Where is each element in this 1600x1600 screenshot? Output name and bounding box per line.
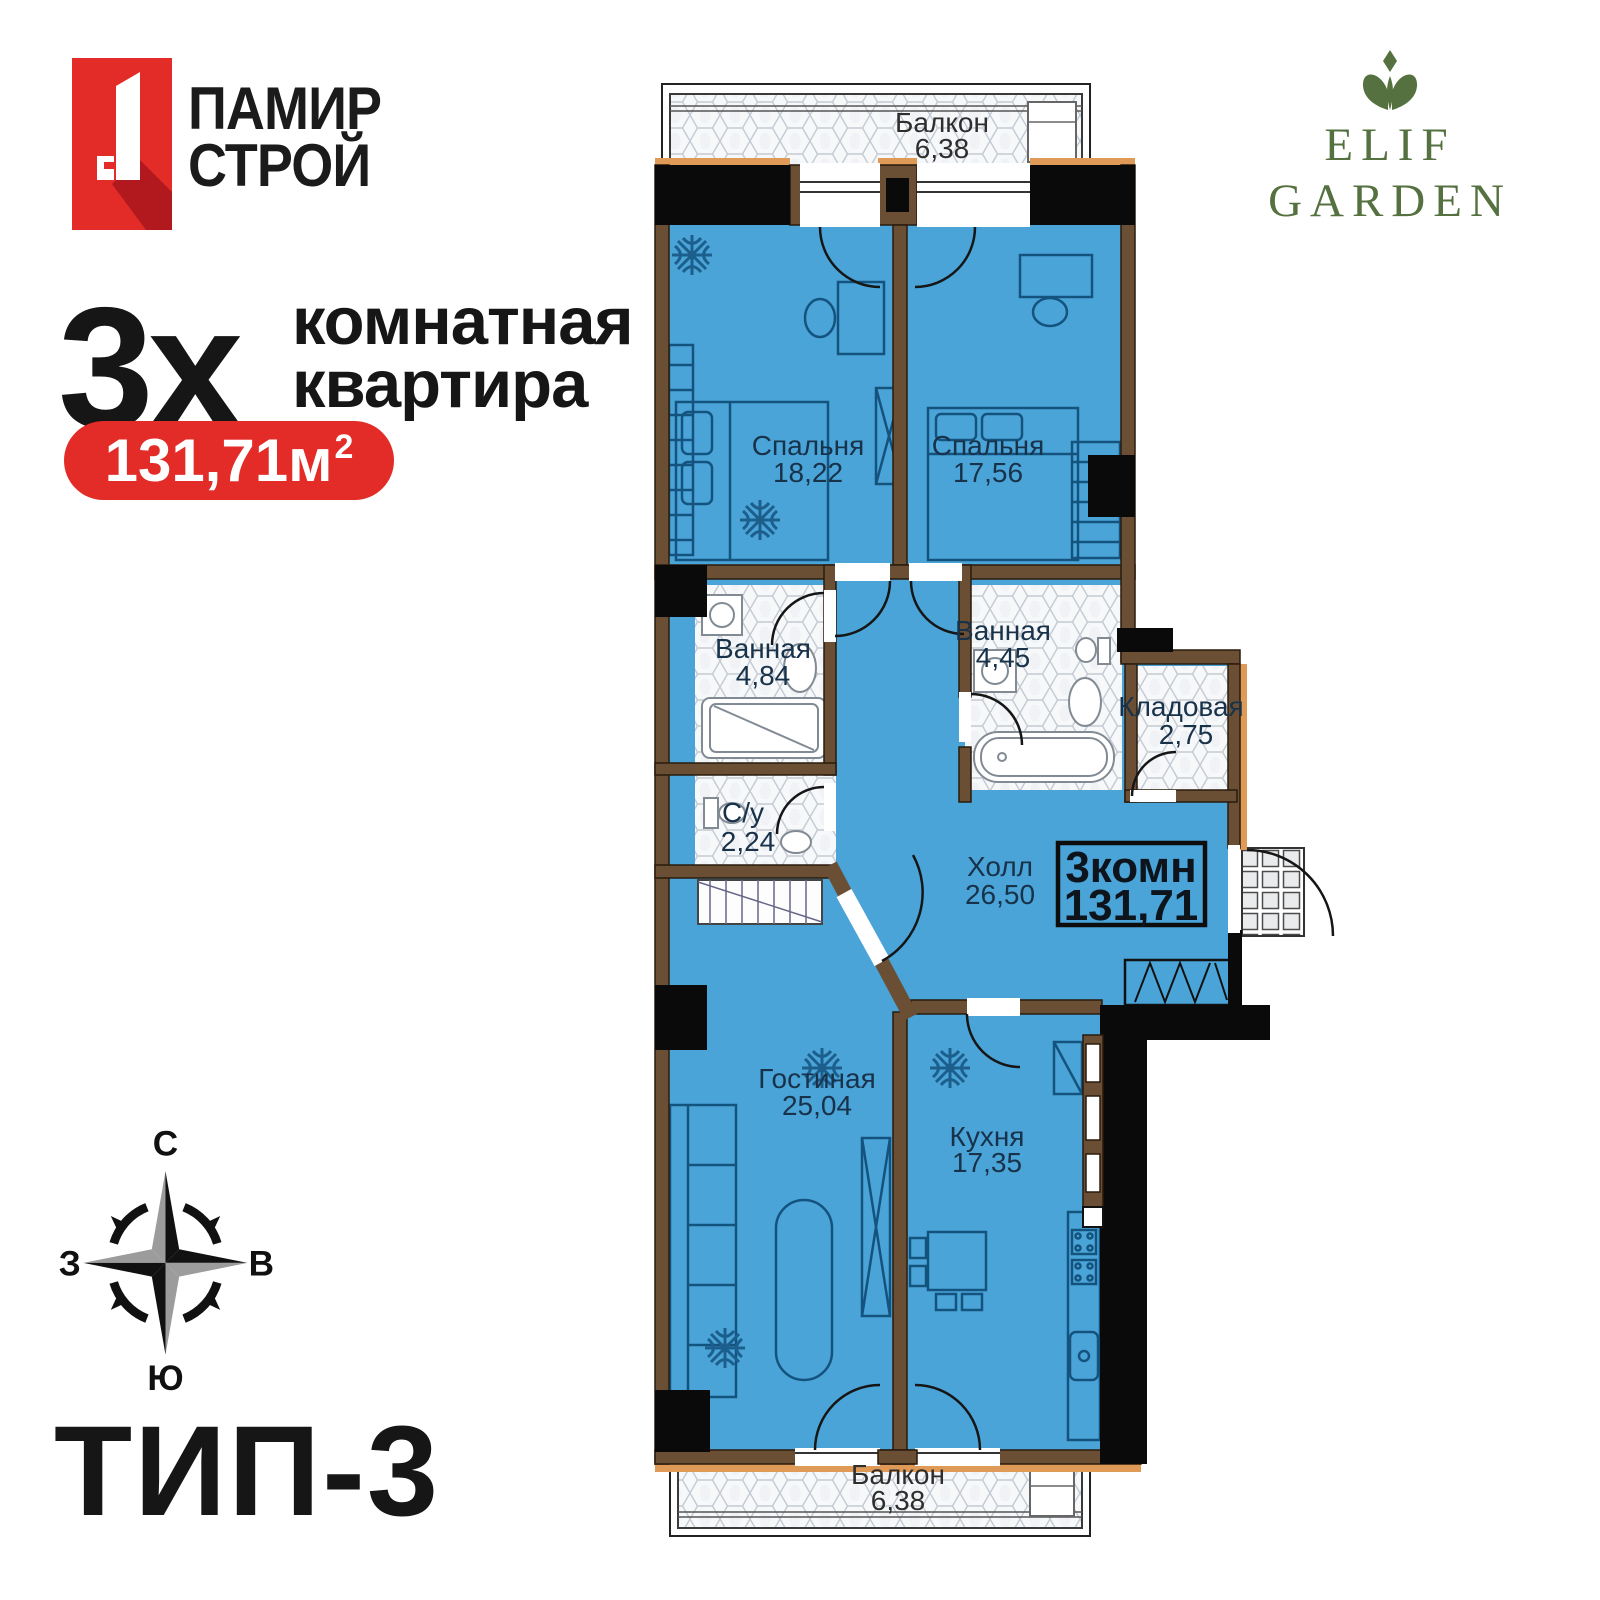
plant-icon — [930, 1048, 970, 1088]
room-area-label: 25,04 — [782, 1090, 852, 1121]
compass-east-label: В — [249, 1245, 273, 1284]
room-label: Холл — [967, 851, 1033, 882]
headline-text: комнатная квартира — [292, 290, 633, 416]
room-area-label: 6,38 — [871, 1485, 926, 1516]
developer-logo: ПАМИР СТРОЙ — [72, 58, 402, 233]
area-badge: 131,71м2 — [64, 421, 394, 500]
room-area-label: 18,22 — [773, 457, 843, 488]
room-label: С/у — [722, 797, 764, 828]
balcony-top — [662, 84, 1090, 170]
developer-logo-icon — [72, 58, 172, 230]
room-area-label: 17,35 — [952, 1147, 1022, 1178]
headline-line1: комнатная — [292, 290, 633, 353]
room-area-label: 2,75 — [1159, 719, 1214, 750]
compass-south-label: Ю — [147, 1359, 183, 1394]
summary-box: 3комн 131,71 — [1058, 843, 1205, 930]
room-area-label: 2,24 — [721, 826, 776, 857]
compass-west-label: З — [59, 1245, 81, 1284]
plant-icon — [740, 500, 780, 540]
plant-icon — [672, 235, 712, 275]
area-badge-sup: 2 — [334, 428, 353, 467]
entry-mat — [1242, 848, 1304, 936]
developer-name: ПАМИР СТРОЙ — [188, 80, 381, 194]
room-area-label: 17,56 — [953, 457, 1023, 488]
area-badge-value: 131,71м — [105, 426, 333, 495]
room-area-label: 6,38 — [915, 133, 970, 164]
plant-icon — [705, 1328, 745, 1368]
tulip-icon — [1355, 50, 1425, 112]
floorplan-poster: { "branding": { "developer": {"name_line… — [0, 0, 1600, 1600]
compass-north-label: С — [153, 1126, 178, 1163]
room-area-label: 26,50 — [965, 879, 1035, 910]
summary-area: 131,71 — [1064, 881, 1199, 930]
room-label: Кладовая — [1118, 691, 1243, 722]
room-area-label: 4,45 — [976, 642, 1031, 673]
headline-line2: квартира — [292, 353, 633, 416]
type-label: ТИП-3 — [54, 1398, 440, 1545]
compass-rose: С В Ю З — [58, 1126, 273, 1394]
kitchen-window — [1083, 1035, 1103, 1227]
developer-name-line2: СТРОЙ — [188, 137, 381, 194]
developer-name-line1: ПАМИР — [188, 80, 381, 137]
room-area-label: 4,84 — [736, 660, 791, 691]
floor-plan: 3комн 131,71 Балкон 6,38 Спальня 18,22 С… — [630, 50, 1340, 1540]
